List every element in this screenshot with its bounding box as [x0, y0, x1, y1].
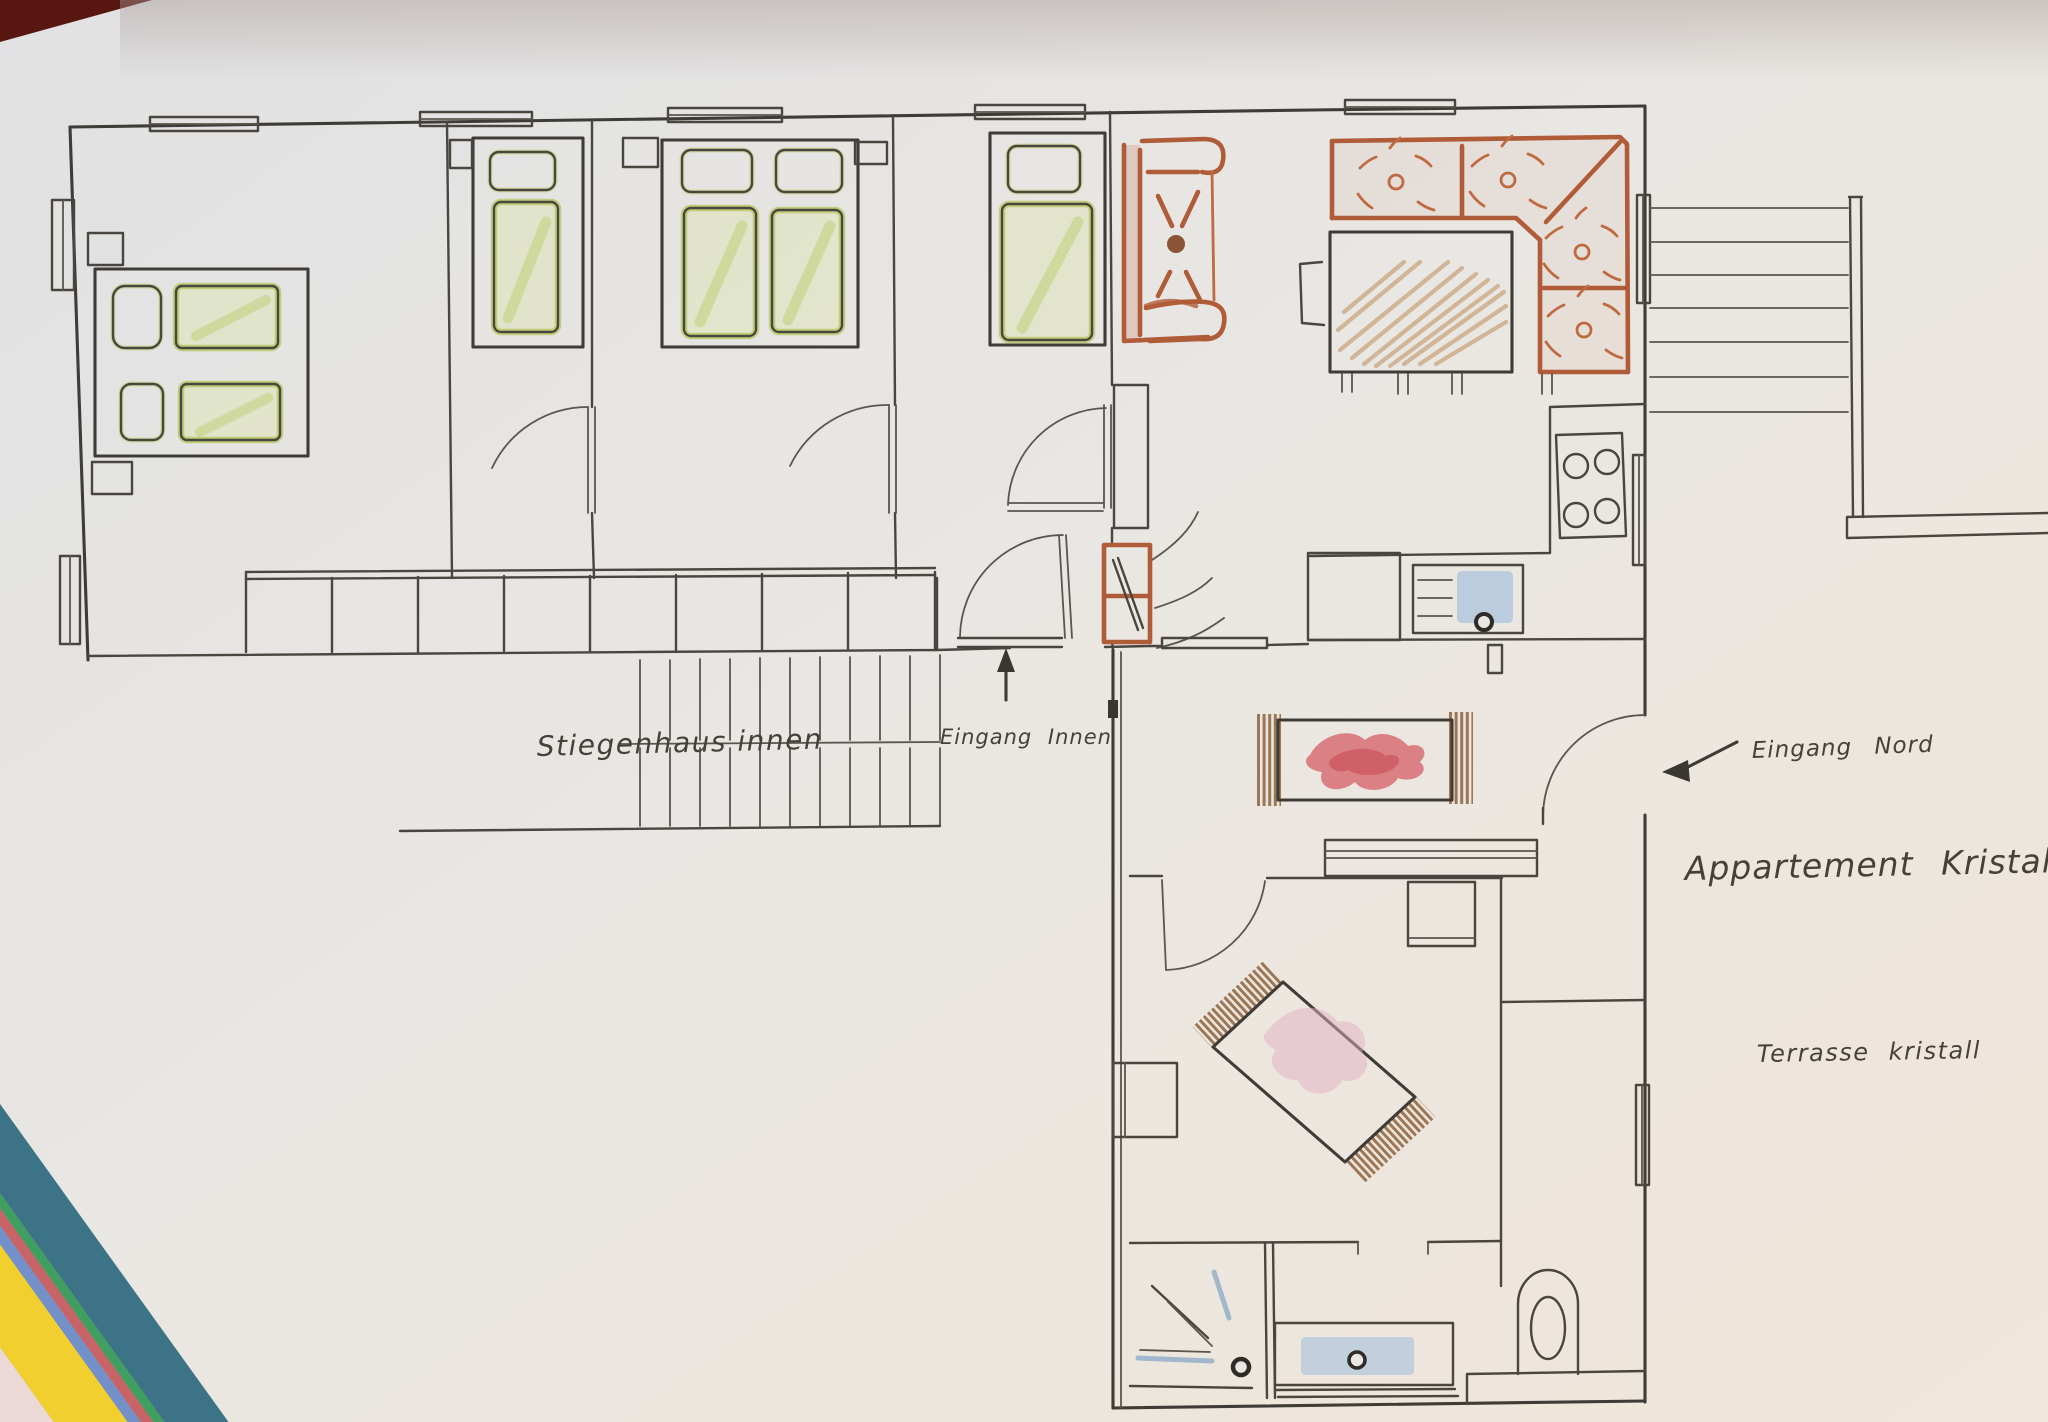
label-eingang-innen: Eingang Innen	[940, 725, 1112, 749]
floor-plan-photo: Stiegenhaus innen Eingang Innen Eingang …	[0, 0, 2048, 1422]
label-terrasse-kristall: Terrasse kristall	[1757, 1036, 1982, 1068]
label-appartement-kristall: Appartement Kristall	[1682, 841, 2048, 888]
door-stop-mark	[1108, 700, 1118, 718]
